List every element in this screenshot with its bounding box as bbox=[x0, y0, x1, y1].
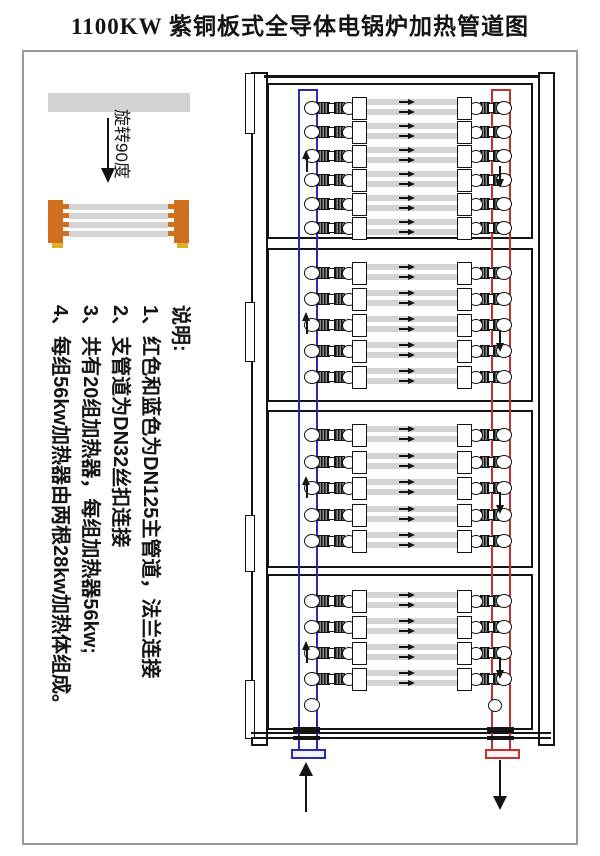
mount-bracket bbox=[457, 288, 472, 311]
mount-bracket bbox=[352, 340, 367, 363]
mount-bracket bbox=[457, 340, 472, 363]
mount-bracket bbox=[457, 169, 472, 192]
mount-bracket bbox=[352, 314, 367, 337]
mount-bracket bbox=[457, 451, 472, 474]
pipe-cap bbox=[496, 455, 512, 469]
mount-bracket bbox=[352, 97, 367, 120]
pipe-cap bbox=[496, 149, 512, 163]
mount-bracket bbox=[457, 366, 472, 389]
blue-foot-flange bbox=[291, 749, 326, 759]
pipe-cap bbox=[496, 370, 512, 384]
flow-right-arrow-icon bbox=[399, 183, 409, 185]
mount-bracket bbox=[457, 121, 472, 144]
outlet-down-arrow-icon bbox=[493, 796, 507, 810]
flow-right-arrow-icon bbox=[399, 544, 409, 546]
mount-bracket bbox=[457, 262, 472, 285]
page-title: 1100KW 紫铜板式全导体电锅炉加热管道图 bbox=[0, 7, 600, 41]
flow-right-arrow-icon bbox=[399, 534, 409, 536]
pipe-cap bbox=[304, 221, 320, 235]
flow-right-arrow-icon bbox=[399, 221, 409, 223]
spare-pipe-cap bbox=[488, 699, 502, 712]
mount-bracket bbox=[352, 193, 367, 216]
note-line: 1、红色和蓝色为DN125主管道，法兰连接 bbox=[135, 305, 165, 845]
note-line: 3、共有20组加热器，每组加热器56kw; bbox=[75, 305, 105, 845]
flow-right-arrow-icon bbox=[399, 101, 409, 103]
left-mount-tab bbox=[245, 515, 255, 572]
blue-pipe-flange bbox=[293, 727, 320, 733]
flow-down-arrow-icon bbox=[499, 330, 501, 344]
pipe-cap bbox=[304, 455, 320, 469]
pipe-cap bbox=[304, 266, 320, 280]
mount-bracket bbox=[352, 145, 367, 168]
heater-tube bbox=[69, 213, 168, 219]
flow-right-arrow-icon bbox=[399, 518, 409, 520]
pipe-cap bbox=[496, 428, 512, 442]
mount-bracket bbox=[352, 121, 367, 144]
flow-right-arrow-icon bbox=[399, 149, 409, 151]
pipe-cap bbox=[304, 534, 320, 548]
pipe-cap bbox=[496, 594, 512, 608]
note-line: 2、支管道为DN32丝扣连接 bbox=[105, 305, 135, 845]
pipe-cap bbox=[304, 428, 320, 442]
pipe-cap bbox=[304, 594, 320, 608]
mount-bracket bbox=[457, 424, 472, 447]
mount-bracket bbox=[352, 288, 367, 311]
mount-bracket bbox=[352, 262, 367, 285]
pipe-cap bbox=[304, 101, 320, 115]
flow-right-arrow-icon bbox=[399, 604, 409, 606]
left-mount-tab bbox=[245, 302, 255, 362]
mount-bracket bbox=[457, 668, 472, 691]
flow-right-arrow-icon bbox=[399, 594, 409, 596]
copper-nub bbox=[63, 204, 69, 209]
mount-bracket bbox=[352, 477, 367, 500]
flow-down-arrow-icon bbox=[496, 670, 504, 679]
notes-heading: 说明: bbox=[165, 305, 195, 845]
mount-bracket bbox=[457, 145, 472, 168]
flow-right-arrow-icon bbox=[399, 292, 409, 294]
pipe-cap bbox=[304, 344, 320, 358]
mount-bracket bbox=[457, 530, 472, 553]
pipe-cap bbox=[304, 672, 320, 686]
flow-down-arrow-icon bbox=[499, 492, 501, 506]
flow-up-arrow-icon bbox=[306, 649, 308, 663]
mount-bracket bbox=[457, 616, 472, 639]
mount-bracket bbox=[352, 642, 367, 665]
pipe-cap bbox=[496, 101, 512, 115]
flow-right-arrow-icon bbox=[399, 276, 409, 278]
heater-tube bbox=[69, 204, 168, 210]
copper-nub bbox=[168, 222, 174, 227]
flow-right-arrow-icon bbox=[399, 508, 409, 510]
flow-right-arrow-icon bbox=[399, 481, 409, 483]
mount-bracket bbox=[457, 477, 472, 500]
copper-end-block bbox=[48, 200, 63, 243]
spare-pipe-cap bbox=[304, 698, 320, 712]
mount-bracket bbox=[457, 642, 472, 665]
mount-bracket bbox=[352, 668, 367, 691]
inlet-up-arrow-icon bbox=[305, 774, 307, 812]
pipe-cap bbox=[304, 508, 320, 522]
flow-right-arrow-icon bbox=[399, 135, 409, 137]
flow-down-arrow-icon bbox=[496, 343, 504, 352]
mount-bracket bbox=[352, 366, 367, 389]
pipe-cap bbox=[304, 370, 320, 384]
flow-right-arrow-icon bbox=[399, 207, 409, 209]
copper-nub bbox=[168, 204, 174, 209]
yellow-foot bbox=[177, 243, 188, 248]
mount-bracket bbox=[352, 217, 367, 240]
page: 1100KW 紫铜板式全导体电锅炉加热管道图 旋转90度 说明: 1、红色和蓝色… bbox=[0, 0, 600, 856]
cabinet-top-rail bbox=[264, 75, 538, 78]
cabinet-right-post bbox=[538, 72, 555, 746]
copper-nub bbox=[63, 231, 69, 236]
copper-nub bbox=[168, 231, 174, 236]
flow-right-arrow-icon bbox=[399, 111, 409, 113]
mount-bracket bbox=[352, 451, 367, 474]
mount-bracket bbox=[352, 169, 367, 192]
flow-right-arrow-icon bbox=[399, 328, 409, 330]
cabinet-left-post bbox=[251, 72, 268, 746]
pipe-cap bbox=[304, 173, 320, 187]
notes-block: 说明: 1、红色和蓝色为DN125主管道，法兰连接 2、支管道为DN32丝扣连接… bbox=[45, 305, 195, 845]
flow-right-arrow-icon bbox=[399, 266, 409, 268]
flow-right-arrow-icon bbox=[399, 656, 409, 658]
copper-nub bbox=[63, 213, 69, 218]
pipe-cap bbox=[496, 197, 512, 211]
rotate-90-label: 旋转90度 bbox=[114, 109, 136, 191]
flow-up-arrow-icon bbox=[306, 158, 308, 172]
mount-bracket bbox=[457, 97, 472, 120]
mount-bracket bbox=[352, 530, 367, 553]
note-line: 4、每组56kw加热器由两根28kw加热体组成。 bbox=[45, 305, 75, 845]
mount-bracket bbox=[352, 616, 367, 639]
flow-right-arrow-icon bbox=[399, 125, 409, 127]
flow-right-arrow-icon bbox=[399, 646, 409, 648]
flow-right-arrow-icon bbox=[399, 173, 409, 175]
left-mount-tab bbox=[245, 680, 255, 739]
flow-right-arrow-icon bbox=[399, 672, 409, 674]
mount-bracket bbox=[352, 504, 367, 527]
pipe-cap bbox=[496, 534, 512, 548]
pipe-cap bbox=[496, 266, 512, 280]
pipe-cap bbox=[304, 125, 320, 139]
flow-down-arrow-icon bbox=[496, 179, 504, 188]
mount-bracket bbox=[457, 193, 472, 216]
flow-up-arrow-icon bbox=[306, 320, 308, 334]
mount-bracket bbox=[457, 504, 472, 527]
flow-right-arrow-icon bbox=[399, 380, 409, 382]
flow-right-arrow-icon bbox=[399, 370, 409, 372]
flow-right-arrow-icon bbox=[399, 318, 409, 320]
copper-nub bbox=[63, 222, 69, 227]
red-pipe-flange bbox=[487, 727, 514, 733]
left-mount-tab bbox=[245, 73, 255, 134]
copper-nub bbox=[168, 213, 174, 218]
flow-right-arrow-icon bbox=[399, 231, 409, 233]
pipe-cap bbox=[496, 221, 512, 235]
flow-right-arrow-icon bbox=[399, 620, 409, 622]
mount-bracket bbox=[457, 590, 472, 613]
flow-right-arrow-icon bbox=[399, 344, 409, 346]
flow-right-arrow-icon bbox=[399, 438, 409, 440]
blue-pipe-flange bbox=[293, 736, 320, 740]
mount-bracket bbox=[457, 314, 472, 337]
pipe-cap bbox=[304, 620, 320, 634]
pipe-cap bbox=[496, 292, 512, 306]
mount-bracket bbox=[352, 590, 367, 613]
flow-right-arrow-icon bbox=[399, 465, 409, 467]
flow-right-arrow-icon bbox=[399, 159, 409, 161]
flow-right-arrow-icon bbox=[399, 455, 409, 457]
heater-tube bbox=[69, 231, 168, 237]
flow-right-arrow-icon bbox=[399, 428, 409, 430]
flow-up-arrow-icon bbox=[306, 484, 308, 498]
flow-right-arrow-icon bbox=[399, 491, 409, 493]
pipe-cap bbox=[304, 292, 320, 306]
rotate-90-arrow-icon bbox=[107, 118, 109, 170]
flow-right-arrow-icon bbox=[399, 302, 409, 304]
flow-down-arrow-icon bbox=[499, 166, 501, 180]
flow-right-arrow-icon bbox=[399, 682, 409, 684]
flow-right-arrow-icon bbox=[399, 354, 409, 356]
pipe-cap bbox=[496, 620, 512, 634]
heater-tube bbox=[69, 222, 168, 228]
flow-right-arrow-icon bbox=[399, 197, 409, 199]
flow-down-arrow-icon bbox=[496, 505, 504, 514]
yellow-foot bbox=[52, 243, 63, 248]
mount-bracket bbox=[352, 424, 367, 447]
pipe-cap bbox=[304, 197, 320, 211]
red-pipe-flange bbox=[487, 736, 514, 740]
pipe-cap bbox=[496, 125, 512, 139]
flow-down-arrow-icon bbox=[499, 657, 501, 671]
flow-right-arrow-icon bbox=[399, 630, 409, 632]
mount-bracket bbox=[457, 217, 472, 240]
outlet-down-arrow-icon bbox=[499, 760, 501, 798]
copper-end-block bbox=[174, 200, 189, 243]
red-foot-flange bbox=[485, 749, 520, 759]
